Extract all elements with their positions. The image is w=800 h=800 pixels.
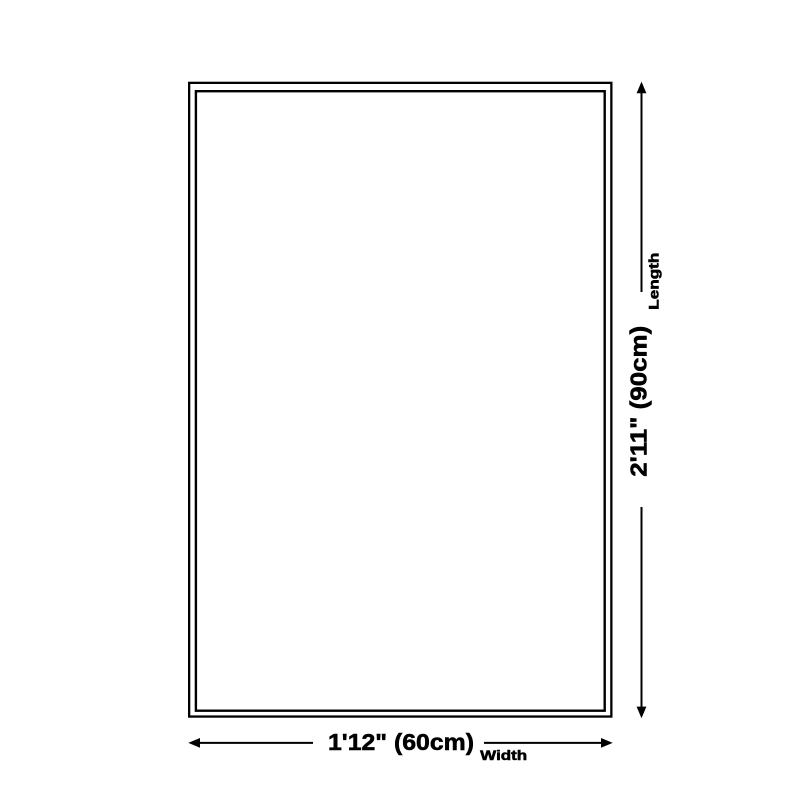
svg-text:2'11" (90cm): 2'11" (90cm) [625, 326, 651, 477]
svg-text:1'12" (60cm): 1'12" (60cm) [328, 729, 474, 755]
svg-text:Length: Length [646, 253, 662, 310]
svg-text:Width: Width [480, 747, 527, 763]
